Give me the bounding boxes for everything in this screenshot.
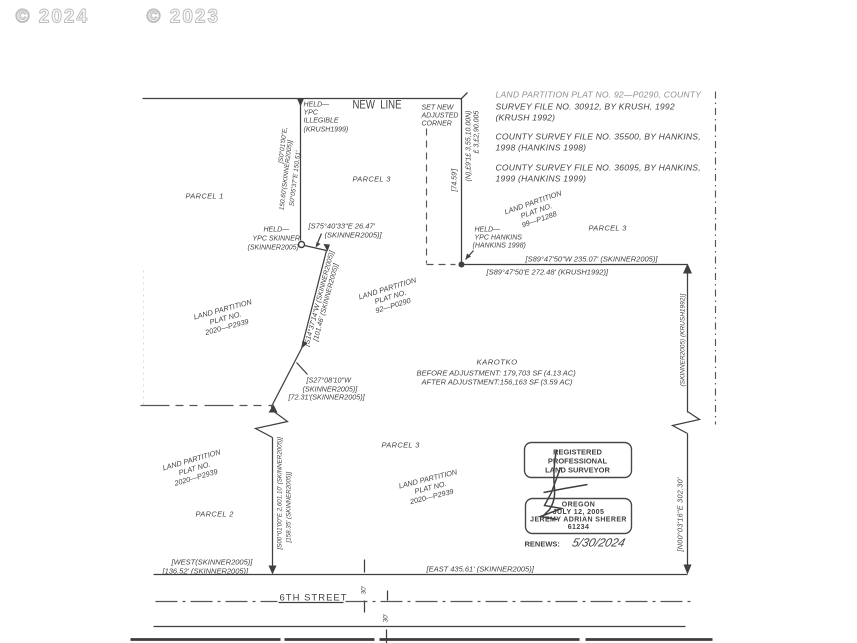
svg-text:(SKINNER2005): (SKINNER2005) <box>248 245 299 252</box>
svg-text:[S89°47'50"W 235.07' (SKINNE: [S89°47'50"W 235.07' (SKINNER2005)] <box>525 255 659 264</box>
svg-text:ILLEGIBLE: ILLEGIBLE <box>304 118 339 125</box>
svg-text:YPC SKINNER: YPC SKINNER <box>253 236 300 243</box>
svg-text:30': 30' <box>383 613 390 622</box>
svg-text:[N00°03'16"E 302.30': [N00°03'16"E 302.30' <box>676 477 685 552</box>
svg-text:© 2024: © 2024 <box>16 7 90 28</box>
svg-text:HELD—: HELD— <box>475 227 502 234</box>
svg-text:1999 (HANKINS 1999): 1999 (HANKINS 1999) <box>496 174 587 184</box>
svg-text:[WEST(SKINNER2005)]: [WEST(SKINNER2005)] <box>171 558 254 567</box>
svg-text:PROFESSIONAL: PROFESSIONAL <box>548 457 608 466</box>
svg-text:PARCEL 3: PARCEL 3 <box>382 441 421 450</box>
svg-text:PARCEL 3: PARCEL 3 <box>353 175 392 184</box>
svg-text:YPC HANKINS: YPC HANKINS <box>475 235 523 242</box>
svg-text:(N),£9'1£ 3,55,10.00N): (N),£9'1£ 3,55,10.00N) <box>466 111 473 182</box>
svg-text:(KRUSH1999): (KRUSH1999) <box>304 127 349 134</box>
svg-text:LAND PARTITION PLAT NO. 92—P02: LAND PARTITION PLAT NO. 92—P0290, COUNTY <box>496 90 703 100</box>
svg-text:NEW LINE: NEW LINE <box>353 98 402 112</box>
svg-text:(SKINNER2005) (KRUSH1992)]: (SKINNER2005) (KRUSH1992)] <box>680 293 687 386</box>
svg-text:COUNTY SURVEY FILE NO. 35500,: COUNTY SURVEY FILE NO. 35500, BY HANKINS… <box>496 132 701 142</box>
svg-text:SURVEY FILE NO. 30912, BY KRUS: SURVEY FILE NO. 30912, BY KRUSH, 1992 <box>496 102 675 112</box>
svg-text:(SKINNER2005)]: (SKINNER2005)] <box>325 231 383 240</box>
svg-text:OREGON: OREGON <box>562 502 596 509</box>
svg-text:[136.52' (SKINNER2005)]: [136.52' (SKINNER2005)] <box>162 567 250 576</box>
svg-text:PARCEL 3: PARCEL 3 <box>589 224 628 233</box>
svg-text:JULY 12, 2005: JULY 12, 2005 <box>553 509 605 516</box>
svg-text:BEFORE ADJUSTMENT: 179,703: BEFORE ADJUSTMENT: 179,703 SF (4.13 AC) <box>417 369 577 378</box>
svg-text:REGISTERED: REGISTERED <box>553 448 602 457</box>
svg-text:PARCEL 1: PARCEL 1 <box>186 192 224 201</box>
svg-text:[74.59']: [74.59'] <box>452 168 459 193</box>
svg-text:[S27°08'10"W: [S27°08'10"W <box>306 376 353 385</box>
svg-text:6TH STREET: 6TH STREET <box>280 593 348 604</box>
svg-text:COUNTY SURVEY FILE NO. 36095,: COUNTY SURVEY FILE NO. 36095, BY HANKINS… <box>496 163 701 173</box>
svg-text:5/30/2024: 5/30/2024 <box>571 536 627 550</box>
svg-text:[158.35' (SKINNER2005)]: [158.35' (SKINNER2005)] <box>286 472 293 544</box>
svg-text:PARCEL 2: PARCEL 2 <box>196 510 234 519</box>
svg-text:YPC: YPC <box>304 110 319 117</box>
svg-text:(KRUSH 1992): (KRUSH 1992) <box>496 113 556 123</box>
svg-text:CORNER: CORNER <box>422 121 452 128</box>
svg-text:[S89°47'50'E 272.48' (KRUSH1: [S89°47'50'E 272.48' (KRUSH1992)] <box>486 268 609 277</box>
svg-text:RENEWS:: RENEWS: <box>525 540 560 549</box>
svg-text:[72.31'(SKINNER2005)]: [72.31'(SKINNER2005)] <box>288 393 366 402</box>
svg-text:[S00°01'00"E 2,601.10' (SKIN: [S00°01'00"E 2,601.10' (SKINNER2005)] <box>277 437 284 551</box>
svg-text:£ 3,£2,90.005: £ 3,£2,90.005 <box>474 111 481 155</box>
svg-text:1998 (HANKINS 1998): 1998 (HANKINS 1998) <box>496 143 587 153</box>
svg-text:HELD—: HELD— <box>264 227 291 234</box>
svg-text:[S75°40'33"E 26.47': [S75°40'33"E 26.47' <box>308 222 376 231</box>
svg-text:61234: 61234 <box>568 524 589 531</box>
svg-text:© 2023: © 2023 <box>147 7 221 28</box>
svg-text:[EAST 435.61' (SKINNER2005)]: [EAST 435.61' (SKINNER2005)] <box>426 565 535 574</box>
svg-text:SET NEW: SET NEW <box>422 105 455 112</box>
svg-text:HELD—: HELD— <box>304 102 331 109</box>
svg-text:KAROTKO: KAROTKO <box>477 358 518 367</box>
svg-text:30': 30' <box>361 585 368 594</box>
svg-text:ADJUSTED: ADJUSTED <box>421 113 459 120</box>
svg-text:(HANKINS 1998): (HANKINS 1998) <box>473 243 526 250</box>
svg-text:AFTER ADJUSTMENT:156,163 SF: AFTER ADJUSTMENT:156,163 SF (3.59 AC) <box>421 378 573 387</box>
